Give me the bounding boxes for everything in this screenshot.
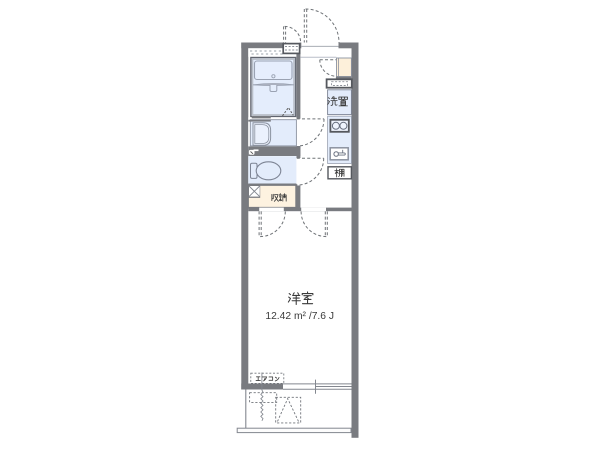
svg-text:12.42 m² /7.6 J: 12.42 m² /7.6 J <box>265 311 334 322</box>
